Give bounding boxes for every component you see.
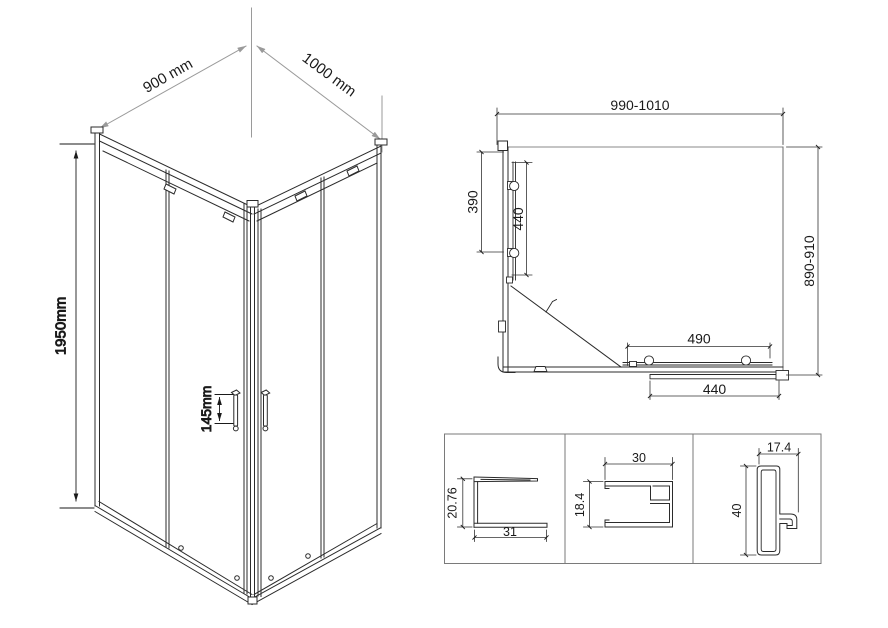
right-post-cap <box>375 139 387 145</box>
dim-plan-side-door: 440 <box>510 207 526 231</box>
dim-profile3-width: 17.4 <box>767 441 791 455</box>
technical-drawing-sheet: 900 mm 1000 mm 1950mm <box>0 0 888 628</box>
dim-plan-depth: 890-910 <box>801 235 817 287</box>
door-handle-right <box>261 390 270 431</box>
corner-post-top-cap <box>247 201 258 208</box>
iso-construction-lines <box>252 8 383 152</box>
plan-side-door <box>499 162 519 332</box>
plan-bottom-clip <box>534 367 547 372</box>
iso-dim-width: 900 mm <box>100 46 246 128</box>
plan-walls <box>498 141 783 375</box>
plan-opening-diagonal <box>511 286 621 367</box>
dim-plan-side-fixed: 390 <box>465 190 481 214</box>
iso-dim-height: 1950mm <box>53 144 95 508</box>
dim-profile1-width: 31 <box>503 525 517 539</box>
corner-post <box>251 206 255 600</box>
plan-front-door <box>534 356 789 380</box>
dim-iso-depth: 1000 mm <box>299 50 359 101</box>
dim-plan-width: 990-1010 <box>610 97 669 113</box>
door-handle-left <box>232 390 241 431</box>
profile-detail-2: 30 18.4 <box>573 451 673 527</box>
plan-corner-bracket <box>498 357 515 373</box>
plan-dimensions: 990-1010 890-910 390 440 490 4 <box>465 97 823 400</box>
iso-view: 900 mm 1000 mm 1950mm <box>53 8 388 605</box>
profile-detail-1: 20.76 31 <box>446 477 548 542</box>
dim-profile1-height: 20.76 <box>446 487 460 518</box>
dim-plan-front-door: 440 <box>703 381 727 397</box>
corner-post-bottom-cap <box>248 597 257 604</box>
plan-outer-door-panel <box>650 375 781 379</box>
shower-enclosure-drawing: 900 mm 1000 mm 1950mm <box>0 0 888 628</box>
shower-cabin <box>91 127 387 605</box>
left-wall-frame <box>95 131 252 605</box>
right-wall-frame <box>252 143 381 605</box>
iso-dim-handle-spacing: 145mm <box>198 386 233 433</box>
dim-handle-spacing: 145mm <box>198 386 214 433</box>
dim-profile2-height: 18.4 <box>573 493 587 517</box>
profile-detail-3: 17.4 40 <box>730 441 798 556</box>
iso-dim-depth: 1000 mm <box>257 46 380 139</box>
profiles-panel: 20.76 31 30 18.4 <box>445 434 822 564</box>
dim-plan-front-travel: 490 <box>687 331 711 347</box>
dim-profile2-width: 30 <box>632 451 646 465</box>
dim-profile3-height: 40 <box>730 504 744 518</box>
dim-iso-width: 900 mm <box>140 55 196 96</box>
left-post-cap <box>91 127 103 133</box>
dim-iso-height: 1950mm <box>53 297 70 355</box>
plan-view: 990-1010 890-910 390 440 490 4 <box>465 97 823 400</box>
